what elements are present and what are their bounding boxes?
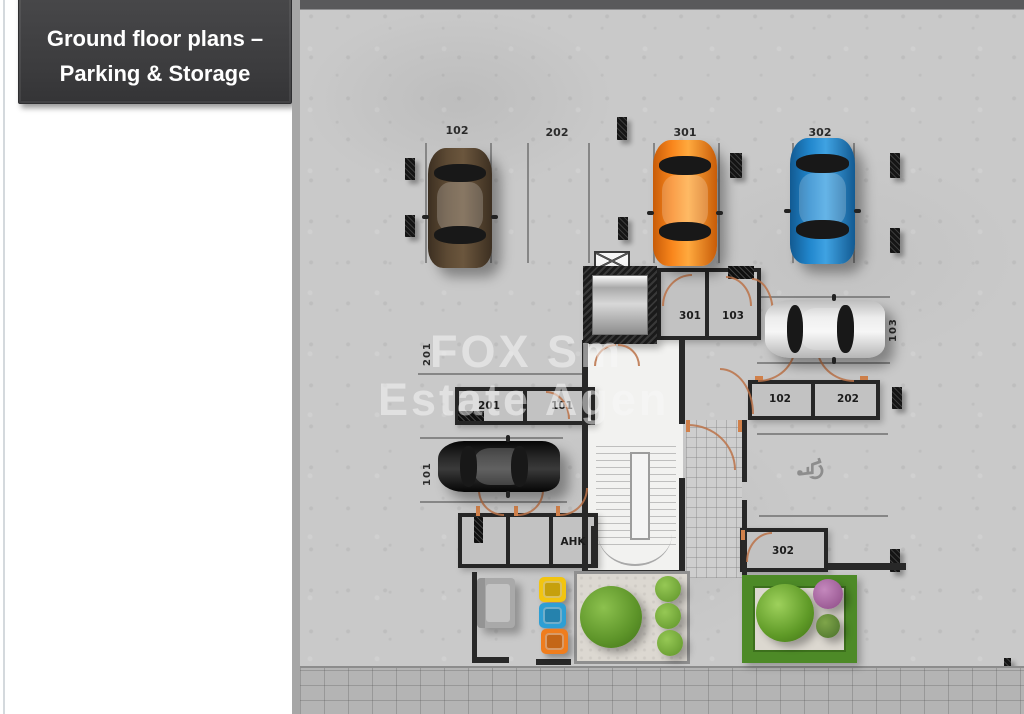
page-left-border [3, 0, 5, 714]
column [890, 228, 900, 253]
car-rear-window [460, 446, 477, 488]
car-rear-window [796, 154, 849, 173]
parking-space-102-label: 102 [437, 124, 477, 137]
purple-bush [813, 579, 843, 609]
wall [742, 420, 747, 482]
car-black-101 [438, 441, 560, 492]
car-mirror [506, 435, 510, 442]
floor-plan: 102 202 301 302 201 101 103 ♿ [292, 0, 1024, 714]
parking-space-301-label: 301 [665, 126, 705, 139]
bin-lid [543, 607, 562, 624]
storage-ahk-label: AHK [551, 536, 595, 548]
door-jamb [755, 376, 763, 380]
room-divider [811, 380, 815, 420]
recycle-bin-yellow [539, 577, 566, 602]
small-bush [655, 576, 681, 602]
column [892, 387, 902, 409]
car-rear-window [787, 305, 804, 353]
column [405, 215, 415, 237]
wall [472, 657, 509, 663]
car-blue-302 [790, 138, 855, 264]
car-roof [437, 182, 483, 232]
column [890, 153, 900, 178]
stair-rail [630, 452, 650, 540]
car-mirror [784, 209, 791, 213]
car-roof [662, 175, 708, 228]
storage-103-label: 103 [711, 310, 755, 322]
parking-space-101-label: 101 [422, 456, 433, 486]
car-mirror [854, 209, 861, 213]
column [618, 217, 628, 240]
wall-hatch [474, 517, 483, 543]
door-jamb [686, 420, 690, 432]
door-jamb [476, 506, 480, 516]
door-jamb [514, 506, 518, 516]
parking-space-202-label: 202 [537, 126, 577, 139]
recycle-bin-orange [541, 629, 568, 654]
car-windshield [796, 220, 849, 239]
car-roof [799, 173, 846, 226]
storage-102-label: 102 [758, 393, 802, 405]
presentation-slide: Ground floor plans – Parking & Storage 1… [0, 0, 1024, 714]
watermark-line2: Estate Agen [378, 374, 669, 426]
car-silver-103 [765, 300, 885, 358]
car-windshield [511, 446, 528, 488]
door-jamb [741, 530, 745, 540]
wall [536, 659, 571, 665]
parking-line [425, 143, 427, 263]
small-bush [655, 603, 681, 629]
slide-title-line2: Parking & Storage [60, 61, 251, 87]
storage-202-label: 202 [826, 393, 870, 405]
slide-title-box: Ground floor plans – Parking & Storage [18, 0, 292, 104]
door-arc [720, 368, 754, 414]
parking-line [718, 143, 720, 263]
parking-line [588, 143, 590, 263]
sofa-back [477, 578, 485, 628]
sidewalk-pavement [300, 666, 1024, 714]
parking-line [757, 296, 890, 298]
car-mirror [647, 211, 654, 215]
car-mirror [832, 357, 836, 364]
car-windshield [659, 222, 711, 241]
wall [679, 478, 685, 577]
bin-lid [543, 581, 562, 598]
parking-line [420, 437, 563, 439]
car-rear-window [434, 164, 486, 182]
storage-301-label: 301 [668, 310, 712, 322]
plan-top-wall [300, 0, 1024, 10]
bin-lid [545, 633, 564, 650]
car-windshield [434, 226, 486, 244]
door-jamb [738, 420, 742, 432]
tree [580, 586, 642, 648]
small-plant [816, 614, 840, 638]
car-mirror [491, 215, 498, 219]
garden-tree [756, 584, 814, 642]
parking-line [527, 143, 529, 263]
room-divider [506, 513, 510, 568]
wall [679, 340, 685, 424]
room-divider [705, 268, 709, 340]
car-rear-window [659, 156, 711, 175]
car-orange-301 [653, 140, 717, 266]
column [730, 153, 742, 178]
column [405, 158, 415, 180]
recycle-bin-blue [539, 603, 566, 628]
wheelchair-icon: ♿ [792, 452, 833, 484]
column [617, 117, 627, 140]
sofa-cushion [486, 584, 510, 622]
car-mirror [422, 215, 429, 219]
sofa [477, 578, 515, 628]
car-mirror [506, 491, 510, 498]
car-mirror [832, 294, 836, 301]
door-jamb [860, 376, 868, 380]
watermark-line1: FOX Sm [430, 326, 623, 378]
car-mirror [716, 211, 723, 215]
slide-title-line1: Ground floor plans – [47, 26, 263, 52]
parking-line [759, 515, 888, 517]
small-bush [657, 630, 683, 656]
door-jamb [556, 506, 560, 516]
wall [828, 563, 906, 570]
car-brown-102 [428, 148, 492, 268]
car-windshield [837, 305, 854, 353]
parking-space-103-label: 103 [888, 312, 899, 342]
parking-line [757, 433, 888, 435]
